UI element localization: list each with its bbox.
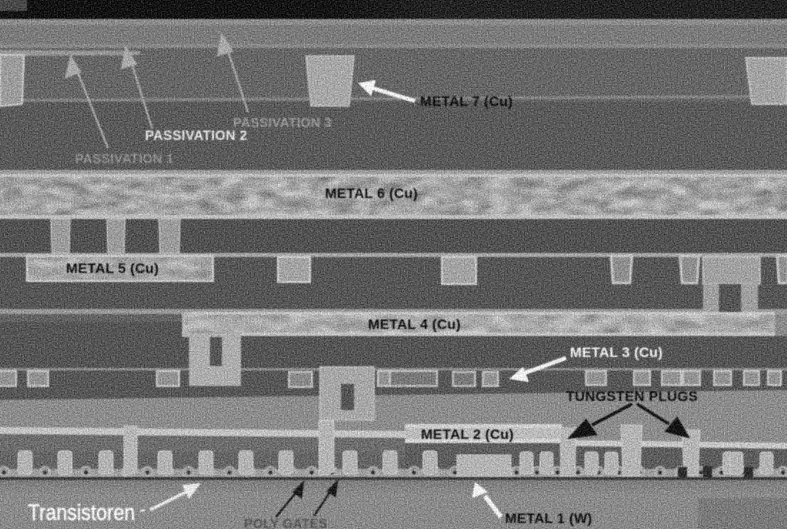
svg-text:Transistoren: Transistoren (28, 500, 135, 525)
svg-text:METAL 2 (Cu): METAL 2 (Cu) (421, 426, 514, 442)
svg-text:METAL 3 (Cu): METAL 3 (Cu) (570, 344, 663, 360)
svg-text:METAL 7 (Cu): METAL 7 (Cu) (420, 93, 513, 109)
svg-text:METAL 6 (Cu): METAL 6 (Cu) (325, 185, 418, 201)
svg-text:POLY GATES: POLY GATES (244, 516, 328, 529)
svg-text:TUNGSTEN PLUGS: TUNGSTEN PLUGS (566, 388, 698, 404)
svg-text:PASSIVATION 1: PASSIVATION 1 (75, 151, 174, 166)
svg-text:METAL 4 (Cu): METAL 4 (Cu) (368, 316, 461, 332)
svg-text:PASSIVATION 3: PASSIVATION 3 (233, 115, 332, 130)
svg-text:PASSIVATION 2: PASSIVATION 2 (145, 128, 247, 143)
svg-text:METAL 1 (W): METAL 1 (W) (505, 510, 592, 526)
svg-text:METAL 5 (Cu): METAL 5 (Cu) (66, 260, 159, 276)
